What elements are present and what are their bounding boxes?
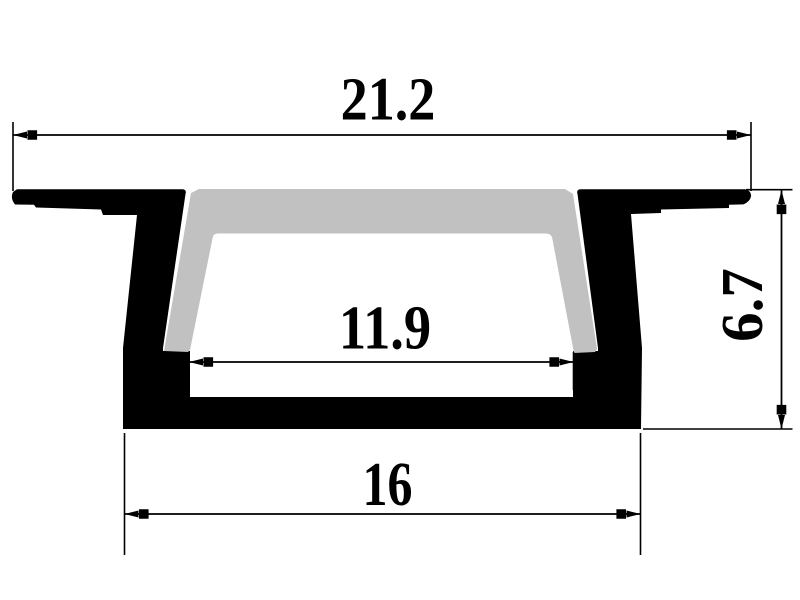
svg-text:11.9: 11.9 <box>339 293 431 362</box>
svg-text:21.2: 21.2 <box>341 67 436 134</box>
svg-text:16: 16 <box>363 451 413 519</box>
svg-text:6.7: 6.7 <box>709 268 775 342</box>
